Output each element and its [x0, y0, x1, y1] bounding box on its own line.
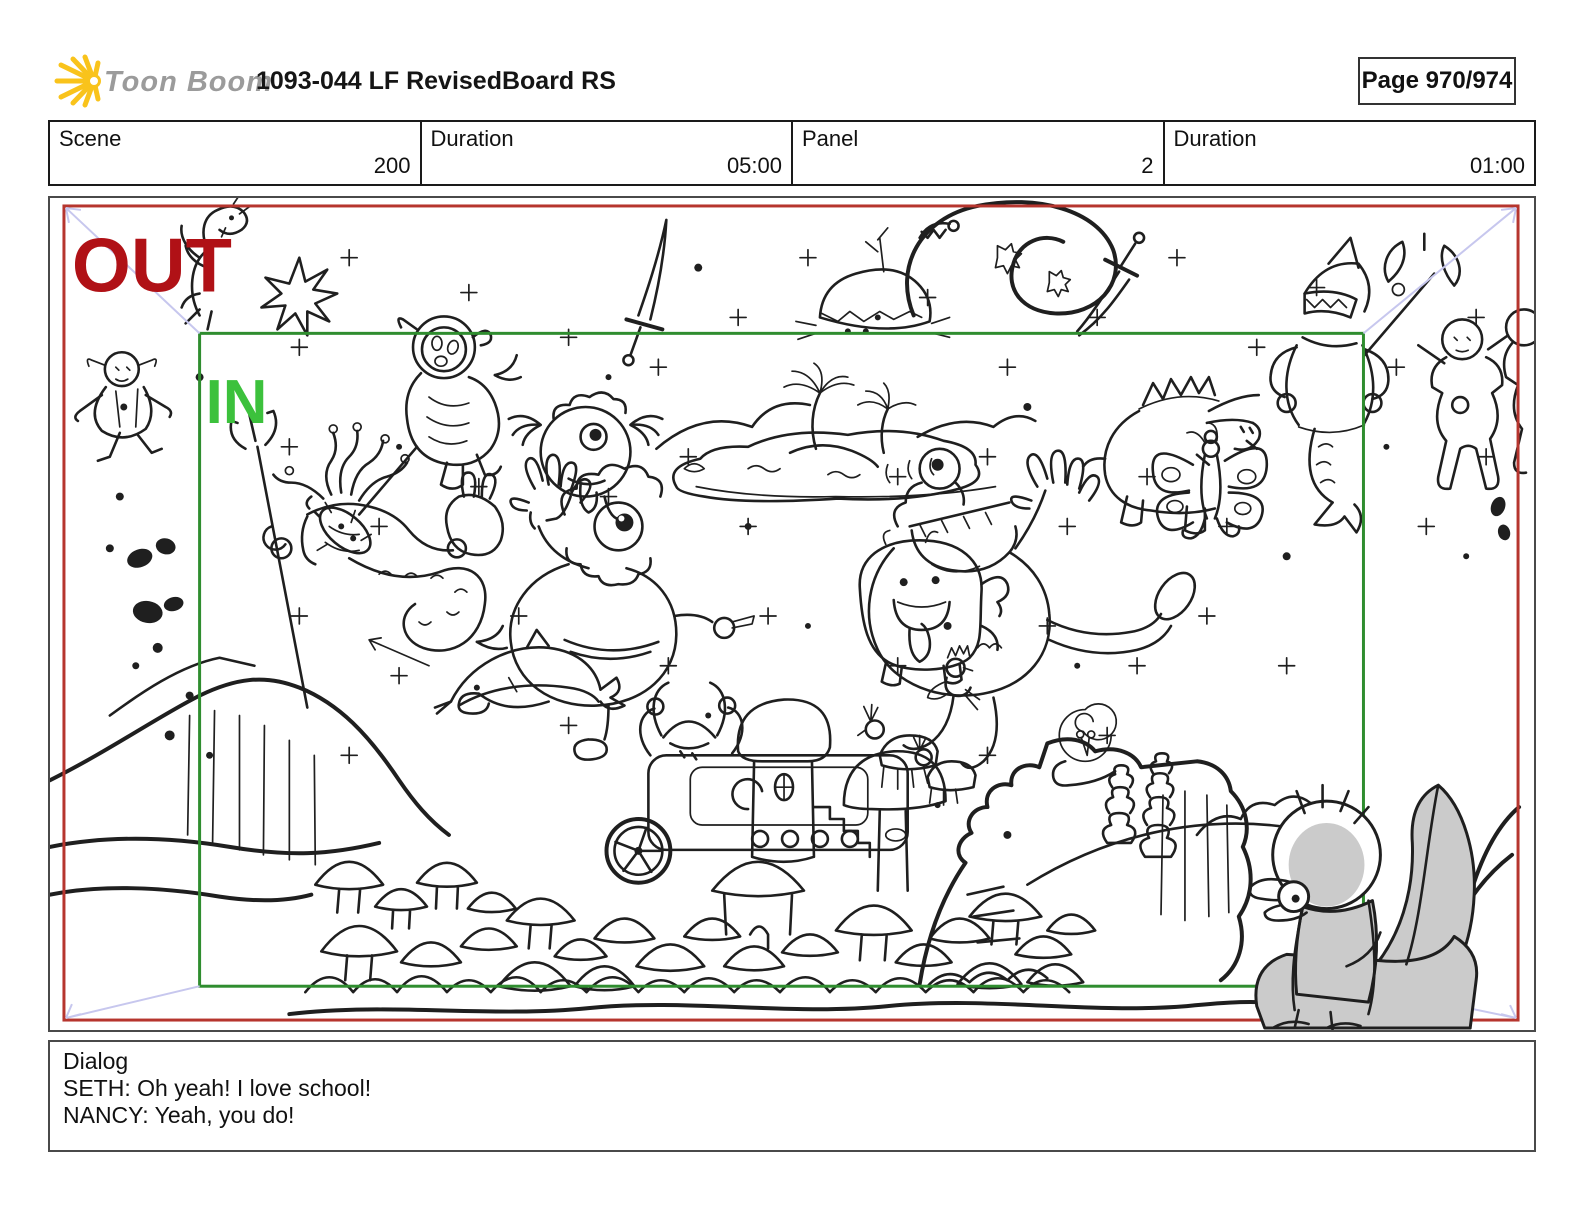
panel-duration-value: 01:00: [1470, 153, 1525, 179]
bird-king: [928, 644, 1002, 710]
shark-merman: [1270, 238, 1388, 533]
out-label: OUT: [72, 224, 232, 309]
starburst: [261, 258, 337, 336]
mushroom-tower: [738, 700, 946, 891]
duck-dino: [1250, 785, 1477, 1030]
document-title: 1093-044 LF RevisedBoard RS: [256, 67, 616, 96]
toonboom-logo-icon: [52, 54, 108, 110]
rabbit-doodle: [446, 473, 503, 555]
page-indicator: Page 970/974: [1358, 57, 1516, 105]
storyboard-drawing: OUT IN: [50, 198, 1534, 1030]
camera-frame-in: [200, 333, 1364, 986]
seaweed-stalks: [1103, 753, 1176, 857]
ink-blobs: [106, 373, 1512, 759]
crab-egg: [796, 228, 950, 339]
monkey-with-mace: [312, 316, 521, 561]
storyboard-panel: OUT IN: [48, 196, 1536, 1032]
butterfly-person: [1153, 423, 1267, 538]
village-mushroom-houses: [289, 862, 1282, 1014]
scene-value: 200: [374, 153, 411, 179]
dialog-box: Dialog SETH: Oh yeah! I love school! NAN…: [48, 1040, 1536, 1152]
scene-label: Scene: [59, 126, 121, 152]
panel-duration-cell: Duration 01:00: [1163, 122, 1535, 184]
sparkles: [281, 250, 1494, 764]
panel-info-row: Scene 200 Duration 05:00 Panel 2 Duratio…: [48, 120, 1536, 186]
tongue-dog: [860, 530, 1009, 685]
dolphin: [369, 630, 624, 714]
scene-duration-label: Duration: [431, 126, 514, 152]
dialog-line-seth: SETH: Oh yeah! I love school!: [63, 1075, 1521, 1102]
winged-eyeball: [509, 393, 663, 521]
coiled-snake: [907, 202, 1116, 315]
scene-duration-cell: Duration 05:00: [420, 122, 792, 184]
merman-trident: [231, 411, 507, 708]
dialog-heading: Dialog: [63, 1048, 1521, 1075]
scene-duration-value: 05:00: [727, 153, 782, 179]
doodle-bus: [607, 755, 908, 882]
scene-cell: Scene 200: [50, 122, 420, 184]
sword-upper-left: [623, 220, 666, 365]
toonboom-logo-text: Toon Boom: [104, 66, 273, 99]
in-label: IN: [206, 368, 268, 437]
axe-gingerbread: [1364, 234, 1534, 489]
landscape-left: [50, 658, 449, 900]
storyboard-page: Toon Boom 1093-044 LF RevisedBoard RS Pa…: [0, 0, 1584, 1224]
lake-palms: [656, 363, 1035, 501]
panel-cell: Panel 2: [791, 122, 1163, 184]
panel-duration-label: Duration: [1174, 126, 1257, 152]
panel-label: Panel: [802, 126, 858, 152]
dialog-line-nancy: NANCY: Yeah, you do!: [63, 1102, 1521, 1129]
scatter-dots: [396, 264, 1469, 839]
viking-strongman: [640, 683, 742, 760]
panel-value: 2: [1141, 153, 1153, 179]
